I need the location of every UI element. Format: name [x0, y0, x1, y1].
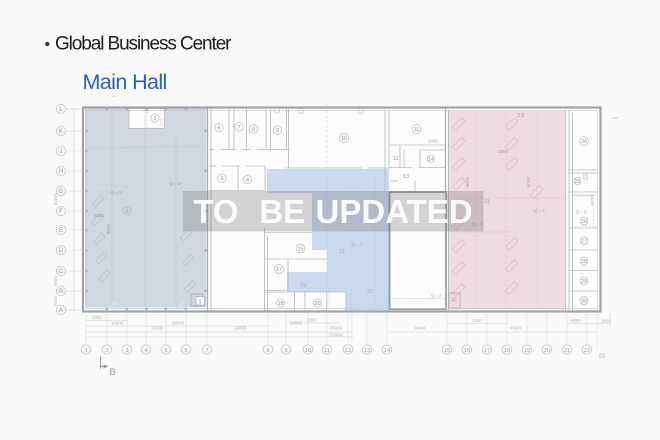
svg-text:Q = 3: Q = 3 — [110, 190, 122, 195]
svg-text:Q = 3: Q = 3 — [351, 242, 363, 247]
svg-text:3000: 3000 — [601, 319, 611, 324]
svg-text:36000: 36000 — [151, 326, 164, 331]
svg-text:1000: 1000 — [498, 149, 509, 154]
svg-text:29: 29 — [581, 279, 587, 285]
svg-text:31: 31 — [484, 199, 490, 205]
svg-text:28: 28 — [581, 259, 587, 265]
svg-text:11: 11 — [324, 348, 330, 354]
svg-text:3: 3 — [125, 348, 128, 354]
svg-text:16: 16 — [464, 348, 470, 354]
svg-text:13: 13 — [403, 174, 409, 180]
svg-text:6000: 6000 — [92, 315, 102, 320]
svg-text:22: 22 — [584, 348, 590, 354]
svg-text:7: 7 — [237, 125, 240, 131]
svg-text:23: 23 — [517, 113, 525, 119]
svg-text:21: 21 — [339, 249, 345, 255]
svg-text:6: 6 — [217, 126, 220, 132]
svg-text:14: 14 — [428, 157, 434, 163]
svg-text:6: 6 — [184, 348, 187, 354]
svg-text:4: 4 — [144, 348, 147, 354]
svg-text:Q = 3: Q = 3 — [533, 208, 545, 213]
svg-text:2000: 2000 — [94, 213, 105, 218]
svg-text:23: 23 — [599, 354, 605, 360]
svg-text:Q = 3: Q = 3 — [576, 210, 587, 215]
svg-text:12: 12 — [345, 348, 351, 354]
svg-text:7: 7 — [205, 348, 208, 354]
svg-text:15: 15 — [444, 348, 450, 354]
svg-text:26: 26 — [581, 219, 587, 225]
svg-text:21: 21 — [564, 348, 570, 354]
svg-text:H: H — [59, 169, 63, 175]
svg-text:17: 17 — [276, 267, 282, 273]
svg-text:Main Hall: Main Hall — [83, 70, 167, 94]
svg-text:G: G — [59, 189, 64, 195]
svg-text:13: 13 — [364, 348, 370, 354]
svg-text:K: K — [59, 129, 63, 135]
svg-text:E: E — [59, 228, 63, 234]
svg-text:3: 3 — [153, 116, 156, 122]
svg-text:2000: 2000 — [307, 318, 317, 323]
svg-text:36000: 36000 — [330, 326, 343, 331]
svg-text:10: 10 — [305, 348, 311, 354]
svg-text:18000: 18000 — [172, 321, 185, 326]
svg-text:14: 14 — [384, 348, 390, 354]
svg-text:19: 19 — [524, 348, 530, 354]
svg-text:2: 2 — [105, 348, 108, 354]
svg-text:2: 2 — [126, 209, 129, 215]
svg-text:3000: 3000 — [106, 223, 111, 234]
svg-text:1: 1 — [84, 348, 87, 354]
svg-text:8: 8 — [266, 348, 269, 354]
svg-text:Q = 3: Q = 3 — [169, 181, 181, 186]
svg-text:6000: 6000 — [526, 176, 531, 187]
svg-text:D: D — [59, 248, 64, 254]
svg-text:Global Business Center: Global Business Center — [55, 34, 232, 55]
svg-text:5: 5 — [164, 348, 167, 354]
svg-text:27: 27 — [581, 239, 587, 245]
svg-text:18000: 18000 — [234, 326, 247, 331]
svg-text:6000: 6000 — [53, 276, 58, 286]
svg-text:9: 9 — [284, 348, 287, 354]
svg-text:18400: 18400 — [414, 326, 427, 331]
svg-text:24: 24 — [581, 139, 587, 145]
svg-text:60000: 60000 — [53, 192, 58, 205]
svg-text:20: 20 — [544, 348, 550, 354]
svg-text:6000: 6000 — [53, 296, 58, 306]
svg-text:6000: 6000 — [571, 318, 581, 323]
svg-text:18000: 18000 — [111, 321, 124, 326]
svg-text:A: A — [59, 308, 63, 314]
svg-text:45000: 45000 — [510, 326, 523, 331]
svg-text:J: J — [60, 149, 63, 155]
svg-text:153800: 153800 — [329, 333, 344, 338]
svg-text:18: 18 — [504, 348, 510, 354]
svg-text:9: 9 — [276, 128, 279, 134]
svg-text:10: 10 — [341, 136, 347, 142]
svg-text:25: 25 — [575, 179, 581, 185]
svg-text:B: B — [110, 367, 116, 377]
svg-text:Q = 3: Q = 3 — [431, 293, 442, 298]
svg-text:11: 11 — [414, 127, 419, 133]
svg-text:20: 20 — [314, 301, 320, 307]
svg-text:1: 1 — [199, 300, 202, 306]
svg-text:F: F — [59, 209, 63, 215]
svg-text:6000: 6000 — [465, 176, 470, 187]
svg-text:5: 5 — [220, 177, 223, 183]
svg-text:18000: 18000 — [290, 321, 303, 326]
svg-text:4: 4 — [246, 178, 249, 184]
svg-text:B: B — [59, 289, 63, 295]
svg-text:C: C — [59, 269, 64, 275]
svg-text:22: 22 — [367, 289, 373, 295]
svg-text:8: 8 — [252, 127, 255, 133]
svg-text:1000: 1000 — [472, 318, 482, 323]
svg-text:18: 18 — [277, 301, 283, 307]
svg-text:17: 17 — [484, 348, 490, 354]
svg-text:TO BE UPDATED: TO BE UPDATED — [193, 193, 472, 230]
svg-text:30: 30 — [581, 299, 587, 305]
svg-text:32: 32 — [451, 298, 457, 304]
svg-text:15: 15 — [297, 247, 303, 253]
svg-text:1000: 1000 — [428, 139, 438, 144]
svg-text:12: 12 — [393, 156, 399, 162]
